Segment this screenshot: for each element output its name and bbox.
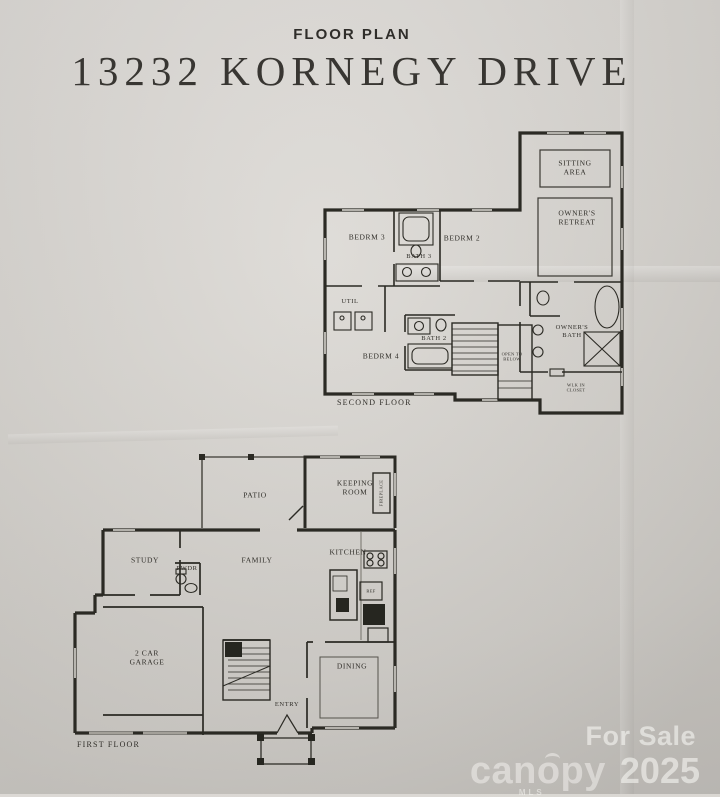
room-label-bedrm4: BEDRM 4 [363, 351, 400, 360]
room-label-dining: DINING [337, 661, 367, 670]
watermark-brand-row: canopy MLS 2025 [470, 752, 700, 790]
keeping-corner-door [289, 506, 303, 520]
mls-watermark: For Sale canopy MLS 2025 [470, 721, 700, 790]
second-floor-plan: SITTING AREA OWNER'S RETREAT BEDRM 3 BED… [322, 126, 632, 421]
stoop-post [308, 734, 315, 741]
kitchen-appliances [360, 551, 388, 642]
oven-glyph [363, 604, 385, 625]
entry-stoop [261, 738, 311, 764]
canopy-logo: canopy MLS [470, 752, 606, 790]
watermark-year: 2025 [620, 752, 700, 790]
room-label-util: UTIL [341, 298, 358, 306]
windows [75, 530, 395, 728]
second-floor-caption: SECOND FLOOR [337, 398, 412, 407]
bath3-fixtures [396, 213, 438, 281]
room-label-bath2: BATH 2 [421, 335, 446, 343]
stoop-post [308, 758, 315, 765]
stoop-post [257, 758, 264, 765]
outer-walls [75, 530, 395, 733]
room-label-owners-retreat: OWNER'S RETREAT [558, 209, 595, 228]
page-title: 13232 KORNEGY DRIVE [0, 47, 704, 95]
canopy-logo-arc-icon [545, 753, 560, 765]
canopy-logo-text: canopy [470, 750, 606, 792]
kitchen-island [330, 570, 357, 620]
room-label-sitting-area: SITTING AREA [558, 159, 591, 178]
room-label-keeping-room: KEEPING ROOM [337, 479, 373, 498]
room-label-kitchen: KITCHEN [329, 547, 366, 556]
appliance-label-ref: REF [366, 588, 375, 593]
room-label-owners-bath: OWNER'S BATH [556, 324, 589, 340]
room-label-family: FAMILY [241, 555, 272, 564]
floor-plan-kicker: FLOOR PLAN [0, 26, 704, 43]
patio-post [199, 454, 205, 460]
stair-closet-block [225, 642, 242, 657]
island-sink-glyph [336, 598, 349, 612]
room-label-bedrm2: BEDRM 2 [444, 233, 481, 242]
room-label-patio: PATIO [243, 490, 267, 499]
patio-post [248, 454, 254, 460]
room-label-bedrm3: BEDRM 3 [349, 232, 386, 241]
room-label-fireplace: FIREPLACE [378, 480, 383, 507]
room-label-garage: 2 CAR GARAGE [130, 649, 165, 668]
room-label-wlk-in-closet: WLK IN CLOSET [567, 383, 586, 394]
util-appliances [334, 312, 372, 330]
room-label-study: STUDY [131, 555, 159, 564]
stoop-post [257, 734, 264, 741]
paper-crease [8, 426, 338, 445]
photographed-floor-plan-sheet: { "page": { "kicker": "FLOOR PLAN", "tit… [0, 0, 720, 794]
canopy-mls-text: MLS [519, 789, 545, 797]
room-label-entry: ENTRY [275, 701, 299, 709]
entry-door-swing [277, 715, 298, 733]
room-label-pwdr: PWDR [176, 565, 197, 573]
room-label-bath3: BATH 3 [406, 253, 431, 261]
first-floor-caption: FIRST FLOOR [77, 740, 140, 749]
for-sale-watermark-text: For Sale [470, 721, 696, 752]
first-floor-plan: PATIO KEEPING ROOM FIREPLACE STUDY PWDR … [65, 448, 410, 770]
room-label-open-to-below: OPEN TO BELOW [502, 352, 523, 363]
